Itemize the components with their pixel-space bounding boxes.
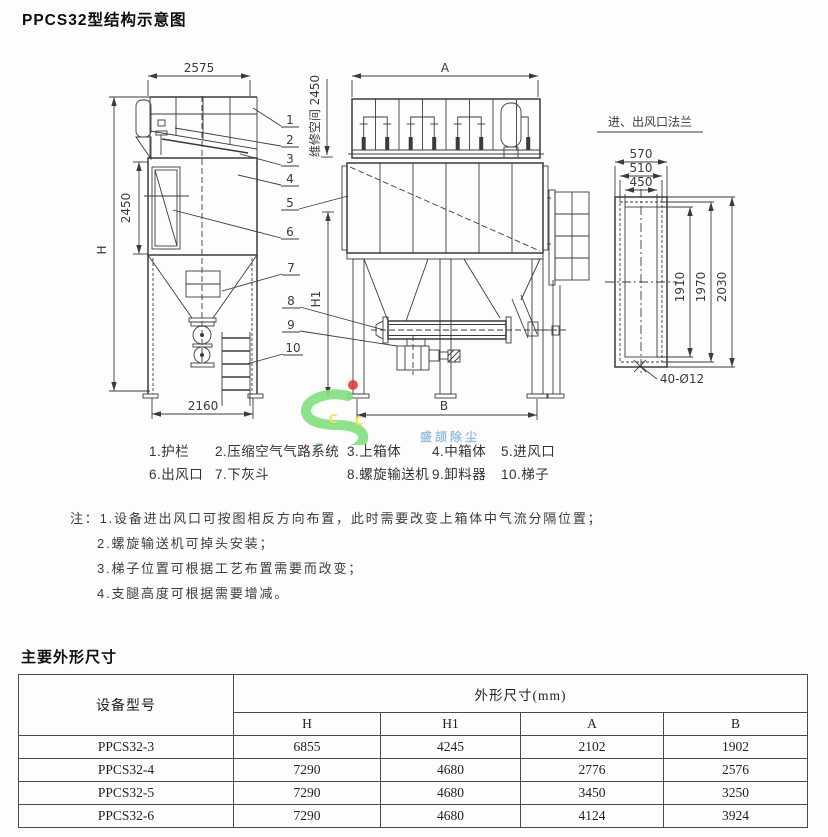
dim-label-A: A xyxy=(441,61,450,75)
watermark: C C 盛颉除尘 xyxy=(306,380,480,445)
dim-label-2030: 2030 xyxy=(715,272,729,303)
watermark-letter-c2: C xyxy=(355,414,364,428)
dim-label-2450: 2450 xyxy=(119,193,133,224)
legend-item: 8.螺旋输送机 xyxy=(347,463,429,483)
legend-item: 1.护栏 xyxy=(149,440,189,460)
value-cell: 3250 xyxy=(664,782,808,805)
value-cell: 2776 xyxy=(521,759,664,782)
value-cell: 4680 xyxy=(381,759,521,782)
dim-label-B: B xyxy=(440,399,448,413)
legend-item: 6.出风口 xyxy=(149,463,203,483)
callout-3: 3 xyxy=(286,152,294,166)
note-text: 2.螺旋输送机可掉头安装； xyxy=(97,536,274,551)
dim-label-2160: 2160 xyxy=(188,399,219,413)
dimensions-table: 设备型号 外形尺寸(mm) H H1 A B PPCS32-3 6855 424… xyxy=(18,674,808,828)
legend-item: 4.中箱体 xyxy=(432,440,486,460)
legend-item: 7.下灰斗 xyxy=(215,463,269,483)
value-cell: 7290 xyxy=(234,759,381,782)
catalog-page: PPCS32型结构示意图 2575 xyxy=(0,0,828,837)
notes-block: 注：1.设备进出风口可按图相反方向布置，此时需要改变上箱体中气流分隔位置； 2.… xyxy=(70,506,602,606)
dim-label-450: 450 xyxy=(630,175,653,189)
dim-label-1910: 1910 xyxy=(673,272,687,303)
callout-1: 1 xyxy=(286,113,294,127)
sub-col-header-B: B xyxy=(664,713,808,736)
model-cell: PPCS32-5 xyxy=(19,782,234,805)
watermark-red-dot xyxy=(348,380,358,390)
value-cell: 4124 xyxy=(521,805,664,828)
callout-9: 9 xyxy=(287,318,295,332)
sub-col-header-H: H xyxy=(234,713,381,736)
value-cell: 4680 xyxy=(381,805,521,828)
dim-label-H: H xyxy=(95,245,109,254)
table-row: PPCS32-3 6855 4245 2102 1902 xyxy=(19,736,808,759)
flange-view: 进、出风口法兰 570 510 450 1910 1970 xyxy=(597,115,735,386)
note-text: 4.支腿高度可根据需要增减。 xyxy=(97,586,289,601)
model-cell: PPCS32-3 xyxy=(19,736,234,759)
value-cell: 7290 xyxy=(234,782,381,805)
note-line: 注：1.设备进出风口可按图相反方向布置，此时需要改变上箱体中气流分隔位置； xyxy=(70,506,602,531)
value-cell: 3450 xyxy=(521,782,664,805)
callout-10: 10 xyxy=(285,341,300,355)
value-cell: 4245 xyxy=(381,736,521,759)
model-column-header: 设备型号 xyxy=(19,675,234,736)
sub-col-header-H1: H1 xyxy=(381,713,521,736)
dim-label-1970: 1970 xyxy=(694,272,708,303)
table-row: PPCS32-6 7290 4680 4124 3924 xyxy=(19,805,808,828)
value-cell: 7290 xyxy=(234,805,381,828)
dim-label-maintenance: 维修空间 2450 xyxy=(307,75,322,157)
model-cell: PPCS32-4 xyxy=(19,759,234,782)
value-cell: 4680 xyxy=(381,782,521,805)
value-cell: 2102 xyxy=(521,736,664,759)
dim-label-bolt-holes: 40-Ø12 xyxy=(660,372,704,386)
dim-label-H1: H1 xyxy=(309,291,323,308)
legend-item: 10.梯子 xyxy=(501,463,549,483)
legend-item: 9.卸料器 xyxy=(432,463,486,483)
note-text: 3.梯子位置可根据工艺布置需要而改变； xyxy=(97,561,363,576)
flange-view-title: 进、出风口法兰 xyxy=(608,115,692,129)
watermark-letter-c1: C xyxy=(329,412,338,426)
callout-5: 5 xyxy=(286,196,294,210)
model-cell: PPCS32-6 xyxy=(19,805,234,828)
callout-8: 8 xyxy=(287,294,295,308)
callout-4: 4 xyxy=(286,172,294,186)
side-view: 2575 xyxy=(95,61,263,419)
table-section-title: 主要外形尺寸 xyxy=(21,646,117,667)
note-line: 2.螺旋输送机可掉头安装； xyxy=(70,531,602,556)
dim-label-510: 510 xyxy=(630,161,653,175)
value-cell: 1902 xyxy=(664,736,808,759)
note-text: 1.设备进出风口可按图相反方向布置，此时需要改变上箱体中气流分隔位置； xyxy=(100,511,603,526)
callout-2: 2 xyxy=(286,133,294,147)
legend-item: 5.进风口 xyxy=(501,440,555,460)
value-cell: 2576 xyxy=(664,759,808,782)
note-line: 4.支腿高度可根据需要增减。 xyxy=(70,581,602,606)
callout-7: 7 xyxy=(287,261,295,275)
dims-group-header: 外形尺寸(mm) xyxy=(234,675,808,713)
note-prefix: 注： xyxy=(70,511,100,526)
value-cell: 3924 xyxy=(664,805,808,828)
dim-label-2575: 2575 xyxy=(184,61,215,75)
legend-item: 2.压缩空气气路系统 xyxy=(215,440,339,460)
dim-label-570: 570 xyxy=(630,147,653,161)
front-view: A 维修空间 2450 xyxy=(307,61,589,420)
table-row: PPCS32-4 7290 4680 2776 2576 xyxy=(19,759,808,782)
structure-drawing: 2575 xyxy=(0,0,828,445)
value-cell: 6855 xyxy=(234,736,381,759)
note-line: 3.梯子位置可根据工艺布置需要而改变； xyxy=(70,556,602,581)
callout-6: 6 xyxy=(286,225,294,239)
sub-col-header-A: A xyxy=(521,713,664,736)
legend-item: 3.上箱体 xyxy=(347,440,401,460)
table-row: PPCS32-5 7290 4680 3450 3250 xyxy=(19,782,808,805)
